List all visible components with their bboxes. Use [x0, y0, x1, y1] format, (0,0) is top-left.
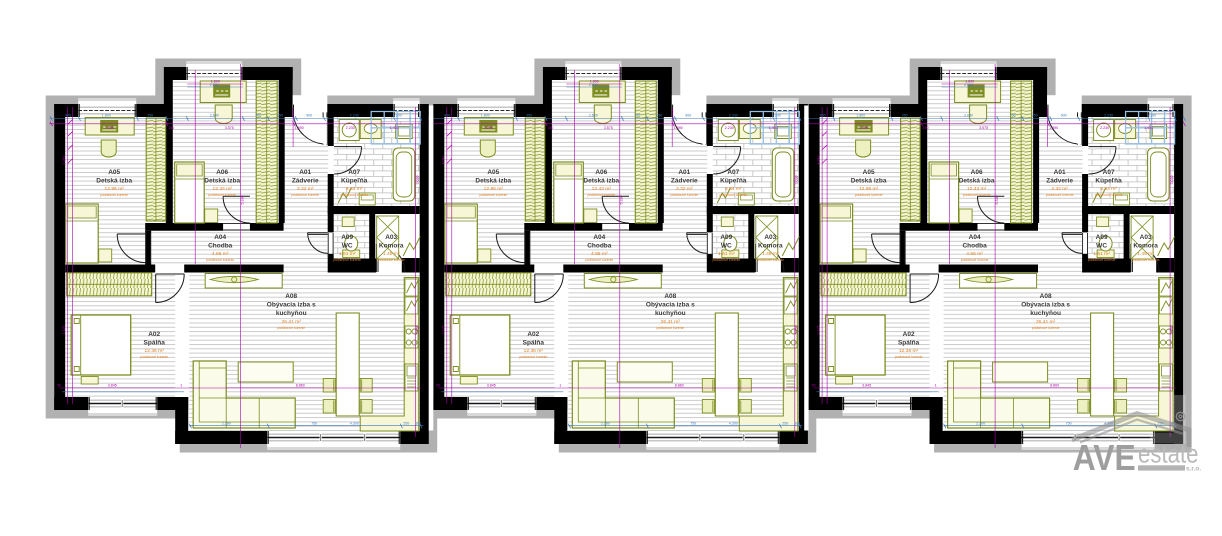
svg-text:podlahové kúrenie: podlahové kúrenie	[1088, 258, 1116, 262]
svg-text:Komora: Komora	[758, 243, 783, 250]
svg-text:900: 900	[444, 114, 450, 118]
svg-text:2.630: 2.630	[589, 114, 598, 118]
svg-text:2.230: 2.230	[350, 114, 359, 118]
svg-text:Spálňa: Spálňa	[144, 340, 166, 347]
svg-text:Spálňa: Spálňa	[898, 340, 920, 347]
svg-text:750: 750	[1066, 422, 1072, 426]
svg-text:150: 150	[168, 126, 174, 130]
svg-text:3.125: 3.125	[817, 326, 821, 335]
svg-text:podlahové kúrenie: podlahové kúrenie	[1046, 193, 1074, 197]
svg-text:3.030: 3.030	[416, 176, 420, 185]
svg-text:A03: A03	[1140, 234, 1152, 241]
svg-text:8.860: 8.860	[675, 384, 684, 388]
svg-text:900: 900	[306, 114, 312, 118]
svg-text:2.630: 2.630	[210, 114, 219, 118]
svg-text:2.260: 2.260	[222, 422, 231, 426]
svg-text:podlahové kúrenie: podlahové kúrenie	[519, 355, 547, 359]
svg-text:podlahové kúrenie: podlahové kúrenie	[656, 326, 684, 330]
svg-text:760: 760	[634, 114, 640, 118]
svg-text:3.32 m²: 3.32 m²	[676, 186, 693, 192]
svg-text:3.845: 3.845	[487, 384, 496, 388]
svg-text:Detská izba: Detská izba	[204, 178, 240, 185]
svg-text:2.230: 2.230	[346, 126, 355, 130]
svg-text:3.250: 3.250	[859, 126, 868, 130]
svg-text:1.61 m²: 1.61 m²	[1093, 251, 1110, 257]
svg-text:Detská izba: Detská izba	[583, 178, 619, 185]
svg-text:kuchyňou: kuchyňou	[655, 310, 686, 317]
svg-text:26.41 m²: 26.41 m²	[282, 319, 302, 325]
svg-text:150: 150	[547, 126, 553, 130]
svg-text:5.34 m²: 5.34 m²	[725, 186, 742, 192]
svg-text:900: 900	[65, 114, 71, 118]
svg-text:1.800: 1.800	[856, 114, 865, 118]
svg-text:Chodba: Chodba	[962, 243, 987, 250]
svg-text:4.040: 4.040	[441, 156, 445, 165]
svg-text:A08: A08	[1040, 293, 1052, 300]
svg-text:500: 500	[794, 422, 800, 426]
svg-text:4.300: 4.300	[350, 422, 359, 426]
svg-text:12.36 m²: 12.36 m²	[524, 348, 544, 354]
svg-text:250: 250	[902, 114, 908, 118]
svg-text:WC: WC	[721, 243, 732, 250]
svg-text:5.330: 5.330	[995, 196, 999, 205]
svg-text:1.450: 1.450	[390, 126, 399, 130]
svg-text:12.43 m²: 12.43 m²	[967, 186, 987, 192]
svg-text:podlahové kúrenie: podlahové kúrenie	[963, 193, 991, 197]
svg-text:1.450: 1.450	[1144, 126, 1153, 130]
svg-text:5.330: 5.330	[620, 196, 624, 205]
svg-text:12.96 m²: 12.96 m²	[484, 186, 504, 192]
svg-text:8.860: 8.860	[1050, 384, 1059, 388]
svg-text:3.030: 3.030	[1170, 176, 1174, 185]
svg-text:Zádverie: Zádverie	[292, 178, 319, 185]
svg-text:A08: A08	[285, 293, 297, 300]
svg-text:WC: WC	[1096, 243, 1107, 250]
svg-text:4.65 m²: 4.65 m²	[966, 251, 983, 257]
svg-text:2.230: 2.230	[729, 114, 738, 118]
svg-text:Kúpeľňa: Kúpeľňa	[341, 178, 368, 185]
svg-text:12.96 m²: 12.96 m²	[105, 186, 125, 192]
svg-text:Spálňa: Spálňa	[523, 340, 545, 347]
svg-text:Obývacia izba s: Obývacia izba s	[267, 302, 316, 309]
svg-text:podlahové kúrenie: podlahové kúrenie	[712, 258, 740, 262]
svg-text:podlahové kúrenie: podlahové kúrenie	[377, 258, 405, 262]
svg-text:3.32 m²: 3.32 m²	[1051, 186, 1068, 192]
svg-text:1.890: 1.890	[674, 126, 683, 130]
svg-text:Chodba: Chodba	[208, 243, 233, 250]
svg-text:A05: A05	[108, 169, 120, 176]
svg-text:750: 750	[311, 422, 317, 426]
svg-text:5.34 m²: 5.34 m²	[1100, 186, 1117, 192]
svg-text:5.255: 5.255	[416, 326, 420, 335]
svg-text:podlahové kúrenie: podlahové kúrenie	[277, 326, 305, 330]
svg-text:1.200: 1.200	[1147, 114, 1156, 118]
svg-text:3.575: 3.575	[604, 126, 613, 130]
svg-text:Chodba: Chodba	[587, 243, 612, 250]
svg-text:A09: A09	[720, 234, 732, 241]
svg-text:Kúpeľňa: Kúpeľňa	[720, 178, 747, 185]
svg-text:podlahové kúrenie: podlahové kúrenie	[756, 258, 784, 262]
svg-text:podlahové kúrenie: podlahové kúrenie	[585, 258, 613, 262]
svg-text:3.845: 3.845	[108, 384, 117, 388]
svg-text:Obývacia izba s: Obývacia izba s	[646, 302, 695, 309]
svg-text:1.45 m²: 1.45 m²	[383, 251, 400, 257]
svg-text:150: 150	[923, 126, 929, 130]
svg-text:2.630: 2.630	[964, 114, 973, 118]
svg-text:750: 750	[690, 422, 696, 426]
svg-text:A04: A04	[969, 234, 981, 241]
svg-text:podlahové kúrenie: podlahové kúrenie	[961, 258, 989, 262]
svg-text:A04: A04	[214, 234, 226, 241]
svg-text:podlahové kúrenie: podlahové kúrenie	[670, 193, 698, 197]
svg-text:A05: A05	[487, 169, 499, 176]
svg-text:12.36 m²: 12.36 m²	[899, 348, 919, 354]
svg-text:A05: A05	[863, 169, 875, 176]
svg-text:250: 250	[403, 422, 409, 426]
svg-text:podlahové kúrenie: podlahové kúrenie	[719, 193, 747, 197]
svg-text:12.43 m²: 12.43 m²	[592, 186, 612, 192]
svg-text:podlahové kúrenie: podlahové kúrenie	[291, 193, 319, 197]
svg-text:760: 760	[1010, 114, 1016, 118]
svg-text:A09: A09	[341, 234, 353, 241]
svg-text:5.330: 5.330	[240, 196, 244, 205]
svg-text:12.43 m²: 12.43 m²	[213, 186, 233, 192]
svg-text:1.61 m²: 1.61 m²	[339, 251, 356, 257]
svg-text:1.890: 1.890	[965, 80, 974, 84]
svg-text:AVE: AVE	[1073, 437, 1136, 478]
svg-text:3.845: 3.845	[862, 384, 871, 388]
svg-text:760: 760	[255, 114, 261, 118]
svg-text:A03: A03	[385, 234, 397, 241]
svg-text:250: 250	[656, 114, 662, 118]
svg-text:2.260: 2.260	[601, 422, 610, 426]
svg-text:12.36 m²: 12.36 m²	[145, 348, 165, 354]
svg-text:Obývacia izba s: Obývacia izba s	[1021, 302, 1070, 309]
svg-text:Komora: Komora	[379, 243, 404, 250]
svg-text:900: 900	[685, 114, 691, 118]
svg-text:1.200: 1.200	[393, 114, 402, 118]
svg-text:Zádverie: Zádverie	[671, 178, 698, 185]
svg-text:250: 250	[277, 114, 283, 118]
svg-text:5.34 m²: 5.34 m²	[346, 186, 363, 192]
svg-text:A04: A04	[593, 234, 605, 241]
svg-text:Komora: Komora	[1133, 243, 1158, 250]
svg-text:900: 900	[820, 114, 826, 118]
svg-text:900: 900	[1061, 114, 1067, 118]
svg-text:podlahové kúrenie: podlahové kúrenie	[479, 193, 507, 197]
svg-text:4.65 m²: 4.65 m²	[212, 251, 229, 257]
svg-text:podlahové kúrenie: podlahové kúrenie	[340, 193, 368, 197]
svg-text:1.800: 1.800	[102, 114, 111, 118]
svg-text:A07: A07	[1103, 169, 1115, 176]
svg-text:1.890: 1.890	[295, 126, 304, 130]
svg-text:Detská izba: Detská izba	[959, 178, 995, 185]
svg-text:500: 500	[415, 422, 421, 426]
svg-text:5.255: 5.255	[1170, 326, 1174, 335]
svg-text:1.200: 1.200	[772, 114, 781, 118]
svg-text:Detská izba: Detská izba	[851, 178, 887, 185]
svg-text:A07: A07	[348, 169, 360, 176]
svg-text:1.61 m²: 1.61 m²	[718, 251, 735, 257]
svg-text:Detská izba: Detská izba	[475, 178, 511, 185]
svg-text:podlahové kúrenie: podlahové kúrenie	[1132, 258, 1160, 262]
svg-text:A03: A03	[764, 234, 776, 241]
svg-text:3.125: 3.125	[62, 326, 66, 335]
svg-text:estate: estate	[1138, 438, 1199, 468]
svg-text:4.300: 4.300	[729, 422, 738, 426]
svg-text:250: 250	[147, 114, 153, 118]
svg-text:1.450: 1.450	[769, 126, 778, 130]
svg-text:3.575: 3.575	[225, 126, 234, 130]
svg-text:3.030: 3.030	[795, 176, 799, 185]
svg-text:2.260: 2.260	[976, 422, 985, 426]
svg-text:podlahové kúrenie: podlahové kúrenie	[140, 355, 168, 359]
svg-text:s.r.o.: s.r.o.	[1186, 465, 1201, 472]
svg-text:kuchyňou: kuchyňou	[1030, 310, 1061, 317]
svg-text:A06: A06	[971, 169, 983, 176]
svg-text:2.230: 2.230	[1104, 114, 1113, 118]
svg-text:4.040: 4.040	[62, 156, 66, 165]
svg-text:250: 250	[782, 422, 788, 426]
svg-text:podlahové kúrenie: podlahové kúrenie	[855, 193, 883, 197]
svg-text:250: 250	[1032, 114, 1038, 118]
svg-text:A01: A01	[678, 169, 690, 176]
svg-text:WC: WC	[342, 243, 353, 250]
svg-text:26.41 m²: 26.41 m²	[661, 319, 681, 325]
svg-text:Detská izba: Detská izba	[96, 178, 132, 185]
svg-text:3.32 m²: 3.32 m²	[297, 186, 314, 192]
svg-text:A06: A06	[216, 169, 228, 176]
svg-text:Kúpeľňa: Kúpeľňa	[1095, 178, 1122, 185]
svg-text:2.230: 2.230	[725, 126, 734, 130]
svg-text:3.575: 3.575	[979, 126, 988, 130]
svg-text:4.65 m²: 4.65 m²	[591, 251, 608, 257]
svg-text:podlahové kúrenie: podlahové kúrenie	[333, 258, 361, 262]
svg-text:250: 250	[526, 114, 532, 118]
svg-text:A06: A06	[595, 169, 607, 176]
svg-text:1.890: 1.890	[211, 80, 220, 84]
svg-text:3.250: 3.250	[484, 126, 493, 130]
svg-text:A02: A02	[903, 331, 915, 338]
svg-text:1.890: 1.890	[1049, 126, 1058, 130]
svg-text:26.41 m²: 26.41 m²	[1036, 319, 1056, 325]
svg-text:A01: A01	[1054, 169, 1066, 176]
svg-text:8.860: 8.860	[296, 384, 305, 388]
svg-text:podlahové kúrenie: podlahové kúrenie	[100, 193, 128, 197]
svg-text:podlahové kúrenie: podlahové kúrenie	[895, 355, 923, 359]
svg-text:A08: A08	[664, 293, 676, 300]
svg-text:1.890: 1.890	[590, 80, 599, 84]
svg-text:podlahové kúrenie: podlahové kúrenie	[1095, 193, 1123, 197]
svg-text:4.040: 4.040	[817, 156, 821, 165]
svg-text:3.250: 3.250	[105, 126, 114, 130]
svg-text:5.255: 5.255	[795, 326, 799, 335]
svg-text:A02: A02	[148, 331, 160, 338]
svg-text:3.125: 3.125	[441, 326, 445, 335]
svg-text:1.800: 1.800	[481, 114, 490, 118]
svg-text:Zádverie: Zádverie	[1046, 178, 1073, 185]
svg-text:2.230: 2.230	[1100, 126, 1109, 130]
svg-text:A09: A09	[1096, 234, 1108, 241]
svg-text:kuchyňou: kuchyňou	[276, 310, 307, 317]
svg-text:podlahové kúrenie: podlahové kúrenie	[206, 258, 234, 262]
svg-text:podlahové kúrenie: podlahové kúrenie	[208, 193, 236, 197]
svg-text:podlahové kúrenie: podlahové kúrenie	[1032, 326, 1060, 330]
svg-text:A07: A07	[727, 169, 739, 176]
svg-text:podlahové kúrenie: podlahové kúrenie	[587, 193, 615, 197]
svg-text:A02: A02	[527, 331, 539, 338]
svg-text:1.45 m²: 1.45 m²	[1137, 251, 1154, 257]
svg-text:A01: A01	[299, 169, 311, 176]
svg-text:12.96 m²: 12.96 m²	[859, 186, 879, 192]
svg-text:1.45 m²: 1.45 m²	[762, 251, 779, 257]
